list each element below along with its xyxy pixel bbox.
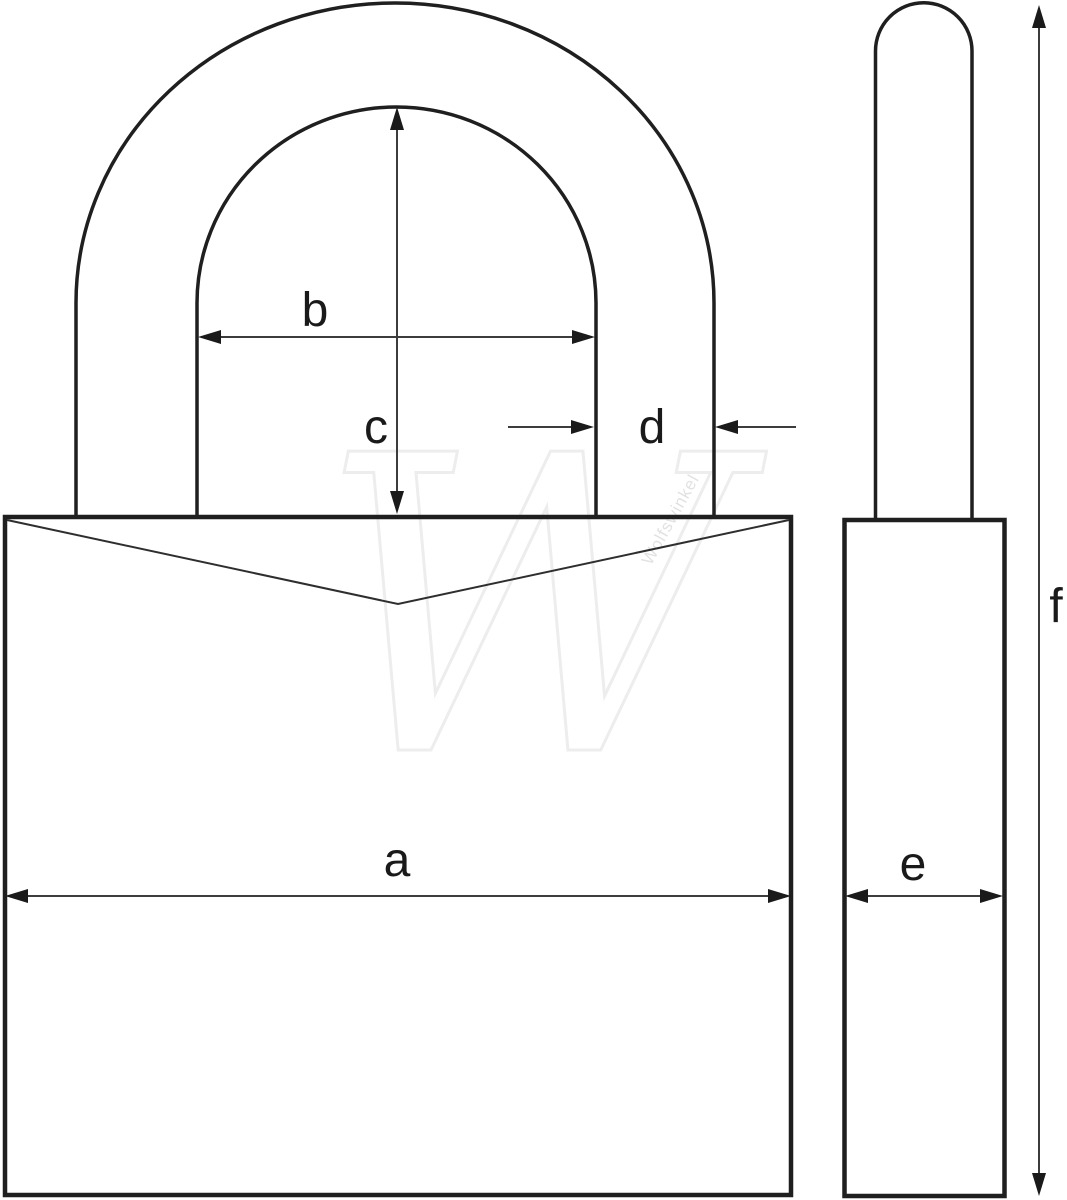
dimension-f: f — [1032, 5, 1063, 1196]
dimension-f-arrowhead-top — [1032, 5, 1046, 28]
dimension-a-arrowhead-right — [768, 889, 791, 903]
dimension-label-d: d — [639, 401, 666, 454]
dimension-b-arrowhead-left — [198, 330, 221, 344]
dimension-c: c — [364, 107, 404, 514]
side-view — [845, 3, 1005, 1196]
dimension-f-arrowhead-bottom — [1032, 1173, 1046, 1196]
dimension-label-f: f — [1049, 580, 1063, 633]
dimension-c-arrowhead-top — [390, 107, 404, 130]
dimension-a-arrowhead-left — [5, 889, 28, 903]
dimension-e: e — [845, 838, 1003, 903]
dimension-e-arrowhead-right — [980, 889, 1003, 903]
padlock-dimension-diagram: W Wolfswinkel a — [0, 0, 1067, 1200]
dimension-e-arrowhead-left — [845, 889, 868, 903]
side-shackle-outline — [876, 3, 973, 520]
diagram-canvas: W Wolfswinkel a — [0, 0, 1067, 1200]
dimension-b-arrowhead-right — [572, 330, 595, 344]
dimension-label-b: b — [302, 284, 329, 337]
dimension-label-e: e — [900, 838, 927, 891]
dimension-label-c: c — [364, 401, 388, 454]
dimension-label-a: a — [384, 834, 411, 887]
